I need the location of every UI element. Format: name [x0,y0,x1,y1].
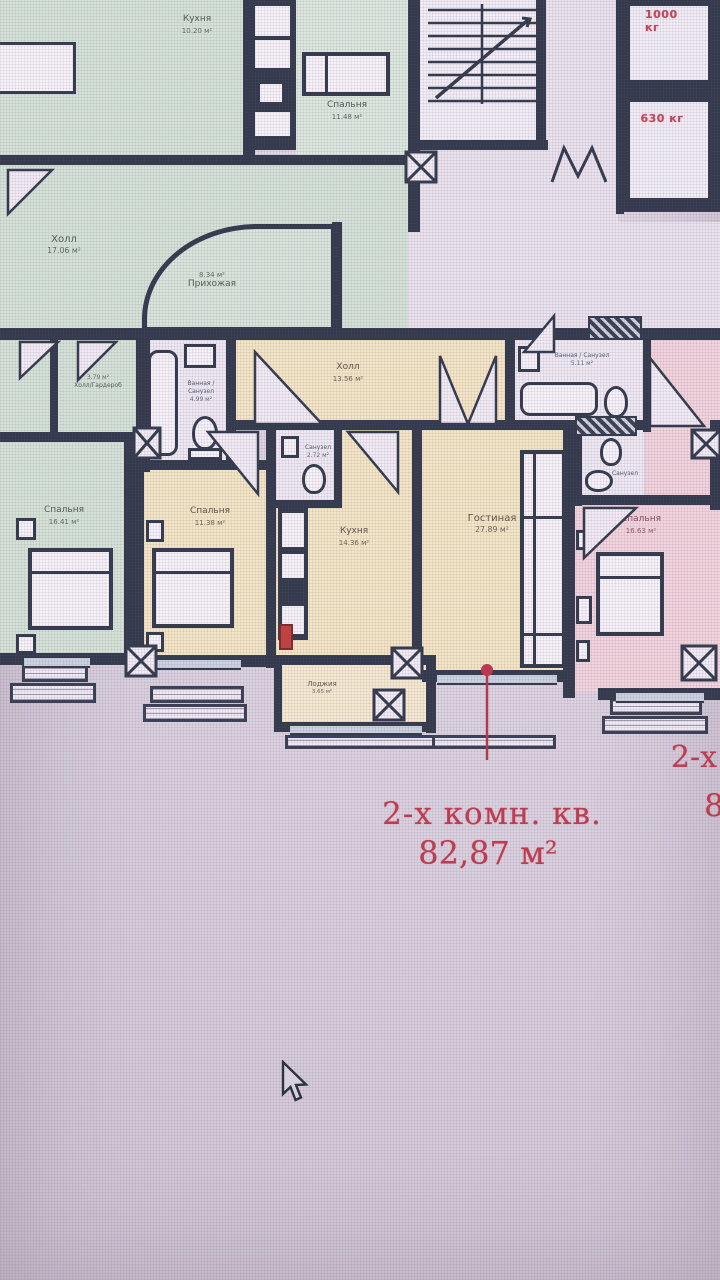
bed-pink [596,552,664,636]
sofa-divider [524,633,562,636]
room-label-living-yellow: Гостиная 27.89 м² [468,512,517,535]
toilet-wc-yellow [302,464,326,494]
room-label-wardrobe-green: 3.79 м² Холл/Гардероб [74,374,122,390]
wall [226,332,236,468]
room-name: Спальня [327,100,367,112]
room-area: 11.38 м² [190,518,230,527]
bed-green-top [302,52,390,96]
window [24,656,90,668]
room-label-wc-yellow: Санузел 2.72 м² [305,444,331,460]
bed-green [28,548,113,630]
room-area: 27.89 м² [468,525,517,535]
room-name: Холл [47,233,81,246]
sink-yellow [184,344,216,368]
room-label-bedroom-pink: Спальня 16.63 м² [621,514,661,535]
nightstand [16,634,36,654]
wall [0,155,420,165]
floor-plan-screenshot: Кухня 10.20 м² Спальня 11.48 м² Холл 17.… [0,0,720,1280]
room-name: Холл/Гардероб [74,382,122,390]
balcony [432,735,556,749]
nightstand [576,596,592,624]
room-name: Санузел [305,444,331,452]
room-name: Санузел [612,470,638,478]
wall [616,0,624,214]
edge-annotation-line2: 8 [704,788,720,824]
wall [616,202,720,212]
room-area: 5.11 м² [555,360,610,368]
sink-wc-pink [600,438,622,466]
stair-landing [420,140,543,224]
room-area: 16.63 м² [621,526,661,535]
room-label-hall-green: Холл 17.06 м² [47,233,81,256]
room-area: 8.34 м² [188,270,236,279]
staircase [420,0,538,140]
wall [408,0,420,232]
wall [643,332,651,432]
balcony [10,683,96,703]
cabinet [254,112,290,136]
kitchen-cabinets-column [250,0,296,150]
wall [266,428,276,668]
bed-yellow [152,548,234,628]
room-loggia-yellow [278,660,428,724]
corridor-area-top [543,0,618,224]
room-area: 13.56 м² [333,374,363,383]
room-name: Лоджия [307,680,336,689]
room-name: Спальня [44,505,84,517]
room-area: 16.41 м² [44,517,84,526]
pillow [600,556,660,579]
apartment-annotation-line1: 2-х комн. кв. [382,796,602,832]
toilet-pink [604,386,628,418]
window-sill [150,686,244,703]
room-area: 2.72 м² [305,452,331,460]
room-corridor-pink [645,340,720,500]
vent-shaft [575,416,637,436]
room-area: 11.48 м² [327,112,367,121]
bathtub-pink [520,382,598,416]
room-name: Ванная / [188,380,215,388]
nightstand [576,640,590,662]
room-name: Кухня [339,526,369,538]
wall [565,495,720,505]
boiler-marker [279,624,293,650]
wall [332,222,342,332]
room-label-bathroom-pink: Ванная / Санузел 5.11 м² [555,352,610,368]
toilet-tank [188,448,222,460]
balcony [285,735,435,749]
room-label-wc-pink: Санузел [612,470,638,478]
wall [426,655,436,733]
room-name: Спальня [621,514,661,526]
stove [282,554,304,578]
sink [260,84,282,102]
room-name: Холл [333,362,363,374]
elevator-capacity-label: 630 кг [640,112,683,125]
window [155,658,241,670]
room-area: 17.06 м² [47,246,81,256]
toilet-wc-pink [585,470,613,492]
wall [124,440,144,662]
elevator-capacity-label: 1000 кг [645,8,695,34]
room-area: 3.79 м² [74,374,122,382]
nightstand [146,632,164,652]
toilet-yellow [192,416,218,450]
room-hall-yellow [228,340,508,426]
wall [243,0,255,158]
sofa-living [520,450,566,668]
window [290,724,422,735]
room-label-bedroom-green-top: Спальня 11.48 м² [327,100,367,121]
room-name: Спальня [190,506,230,518]
pillow [32,552,109,574]
room-area: 4.99 м² [188,396,215,404]
bathtub-yellow [148,350,178,456]
room-label-loggia-yellow: Лоджия 3.65 м² [307,680,336,696]
pillow [306,56,328,92]
wall [408,140,548,150]
window [616,691,704,703]
cabinet [282,513,304,547]
room-label-kitchen-yellow: Кухня 14.36 м² [339,526,369,547]
room-label-entry-green: 8.34 м² Прихожая [188,270,236,291]
room-area: 14.36 м² [339,538,369,547]
wall [334,428,342,506]
nightstand [16,518,36,540]
room-name: Кухня [182,14,212,26]
sink-pink [518,346,540,372]
wall [266,655,426,665]
room-name: Прихожая [188,279,236,291]
kitchen-counter-green [0,42,76,94]
room-label-bedroom-green: Спальня 16.41 м² [44,505,84,526]
room-label-bedroom-yellow: Спальня 11.38 м² [190,506,230,527]
room-label-kitchen-green: Кухня 10.20 м² [182,14,212,35]
cabinet [254,6,290,36]
room-area: 10.20 м² [182,26,212,35]
wall [274,500,342,508]
wall [140,460,274,470]
room-name: Гостиная [468,512,517,525]
wall [710,420,720,510]
mouse-cursor [281,1060,311,1110]
room-area: 3.65 м² [307,689,336,696]
room-label-hall-yellow: Холл 13.56 м² [333,362,363,383]
room-label-bathroom-yellow: Ванная / Санузел 4.99 м² [188,380,215,403]
nightstand [146,520,164,542]
wall [616,84,720,96]
window [437,673,557,685]
sink-wc-yellow [281,436,299,458]
cabinet [254,40,290,68]
wall [505,332,515,430]
apartment-annotation-line2: 82,87 м² [418,834,558,872]
room-name: Ванная / Санузел [555,352,610,360]
wall [712,0,720,212]
pillow [156,552,230,574]
nightstand [576,530,592,550]
wall [536,0,546,150]
wall [412,428,422,670]
balcony [143,704,247,722]
edge-annotation-line1: 2-х [671,740,717,775]
entrance-threshold [588,316,642,340]
kitchen-counter-yellow [278,508,308,640]
balcony [602,716,708,734]
wall [50,338,58,436]
room-name: Санузел [188,388,215,396]
sofa-divider [524,516,562,519]
